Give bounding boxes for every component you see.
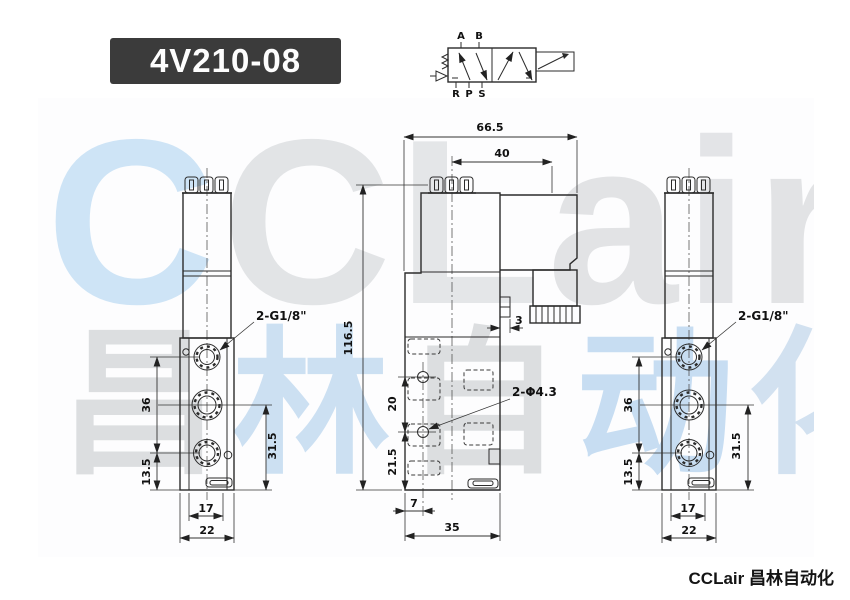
dim-22: 22 — [199, 524, 214, 537]
pilot-triangle-icon — [436, 71, 447, 81]
solenoid-housing — [500, 195, 577, 270]
dim-22: 22 — [681, 524, 696, 537]
dim-116-5: 116.5 — [342, 321, 355, 356]
drawing-page: CCLair 昌林自动化 4V210-08 CCLair 昌林自动化 — [0, 0, 850, 600]
dim-40: 40 — [494, 147, 510, 160]
solenoid-actuator-icon — [536, 52, 574, 71]
front-view-left: 2-G1/8" 36 13.5 31.5 17 22 — [140, 168, 307, 543]
dim-31-5: 31.5 — [266, 432, 279, 459]
electrical-connector — [530, 270, 580, 323]
dim-66-5: 66.5 — [476, 121, 503, 134]
side-view: 2-Φ4.3 66.5 40 116.5 20 21.5 3 — [342, 121, 580, 541]
dim-21-5: 21.5 — [386, 448, 399, 475]
dim-35: 35 — [444, 521, 459, 534]
thread-size-label: 2-G1/8" — [256, 309, 307, 323]
port-label-s: S — [478, 89, 485, 100]
dim-13-5: 13.5 — [622, 458, 635, 485]
pneumatic-symbol: A B R P S — [430, 31, 574, 100]
dim-31-5: 31.5 — [730, 432, 743, 459]
port-label-p: P — [465, 89, 472, 100]
dim-36: 36 — [140, 397, 153, 413]
dim-13-5: 13.5 — [140, 458, 153, 485]
thread-size-label: 2-G1/8" — [738, 309, 789, 323]
port-label-r: R — [452, 89, 460, 100]
dim-17: 17 — [198, 502, 213, 515]
dim-7: 7 — [410, 497, 418, 510]
mounting-hole-label: 2-Φ4.3 — [512, 385, 557, 399]
valve-technical-drawing: A B R P S — [0, 0, 850, 600]
port-label-b: B — [475, 31, 483, 42]
dim-20: 20 — [386, 396, 399, 412]
dim-3: 3 — [515, 314, 523, 327]
dim-36: 36 — [622, 397, 635, 413]
spring-return-icon — [442, 54, 448, 69]
port-label-a: A — [457, 31, 465, 42]
front-view-right: 2-G1/8" 36 13.5 31.5 17 22 — [622, 168, 789, 543]
dim-17: 17 — [680, 502, 695, 515]
